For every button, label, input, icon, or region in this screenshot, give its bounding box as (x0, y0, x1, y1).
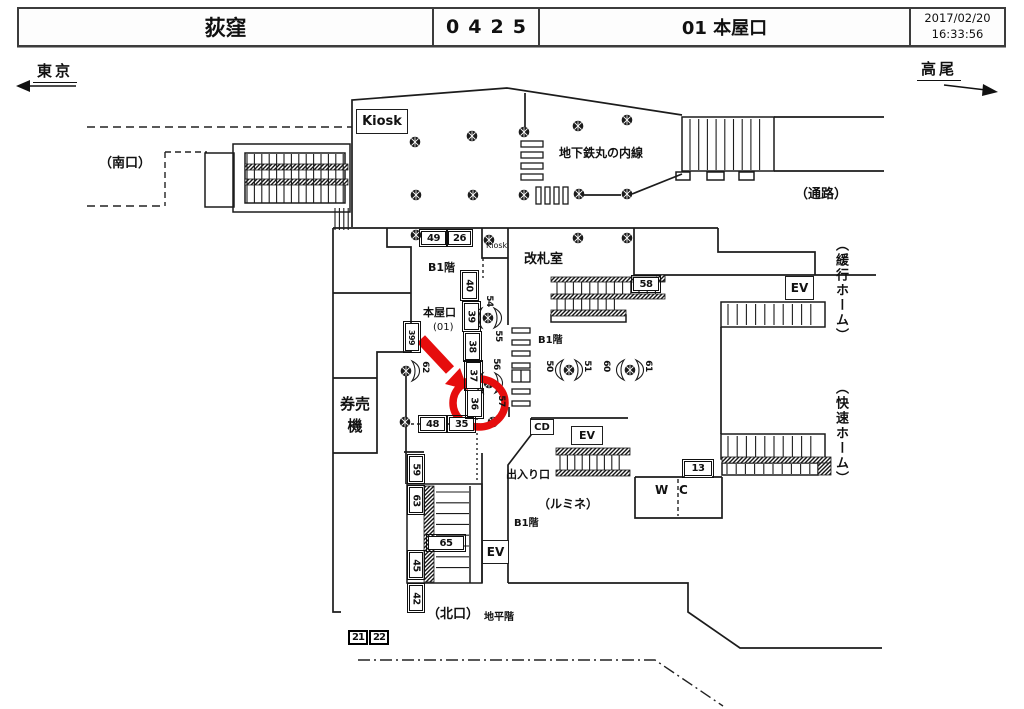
camera-number-55: 55 (493, 327, 503, 345)
ev-upper-right: EV (785, 276, 814, 300)
position-box-42[interactable]: 42 (409, 585, 423, 611)
label-b1-south: B1階 (514, 518, 539, 530)
position-box-36[interactable]: 36 (467, 390, 482, 417)
camera-number-62: 62 (420, 358, 430, 376)
position-box-37[interactable]: 37 (466, 362, 481, 389)
camera-number-56: 56 (491, 355, 501, 373)
label-local-platform: （緩行ホーム） (832, 238, 847, 343)
ev-center: EV (571, 426, 603, 445)
label-wc-w: W (655, 484, 668, 498)
position-box-39[interactable]: 39 (464, 303, 479, 330)
label-passage: （通路） (795, 188, 847, 203)
label-exit-entrance: 出入り口 (506, 469, 550, 482)
label-marunouchi-line: 地下鉄丸の内線 (559, 147, 643, 161)
station-map-viewer: { "header": { "station": "荻窪", "code": "… (0, 0, 1024, 709)
position-box-38[interactable]: 38 (465, 333, 480, 360)
position-box-40[interactable]: 40 (462, 272, 477, 299)
label-rapid-platform: （快速ホーム） (832, 381, 847, 486)
label-ground-level: 地平階 (484, 612, 514, 624)
label-honyaguchi-no: (01) (433, 322, 454, 334)
label-b1-center: B1階 (538, 335, 563, 347)
position-box-26[interactable]: 26 (448, 231, 471, 245)
label-gate-office: 改札室 (524, 253, 563, 268)
label-honyaguchi: 本屋口 (423, 307, 456, 320)
ev-lower-left: EV (482, 540, 509, 564)
camera-number-54: 54 (484, 292, 494, 310)
label-lumine: （ルミネ） (538, 498, 598, 512)
label-south-exit: （南口） (99, 157, 151, 172)
position-box-13[interactable]: 13 (684, 461, 712, 476)
camera-number-50: 50 (544, 357, 554, 375)
position-box-45[interactable]: 45 (409, 552, 423, 578)
position-box-21[interactable]: 21 (348, 630, 368, 645)
position-box-48[interactable]: 48 (420, 417, 445, 431)
position-box-59[interactable]: 59 (409, 456, 423, 482)
position-box-58[interactable]: 58 (633, 277, 659, 291)
camera-number-61: 61 (643, 357, 653, 375)
label-ticket-machines: 券売機 (337, 394, 373, 438)
kiosk-box: Kiosk (356, 109, 408, 134)
label-layer: （南口）地下鉄丸の内線（通路）Kiosk改札室B1階B1階B1階本屋口(01)券… (0, 0, 1024, 709)
position-box-35[interactable]: 35 (449, 417, 474, 431)
label-north-exit: （北口） (427, 608, 479, 623)
camera-number-51: 51 (582, 357, 592, 375)
label-b1-west: B1階 (428, 262, 455, 275)
position-box-49[interactable]: 49 (421, 231, 446, 245)
camera-number-60: 60 (601, 357, 611, 375)
position-box-22[interactable]: 22 (369, 630, 389, 645)
cd-box: CD (530, 419, 554, 435)
label-wc-c: C (679, 484, 688, 498)
position-box-65[interactable]: 65 (428, 536, 464, 550)
camera-number-57: 57 (496, 392, 506, 410)
label-kiosk-small: Kiosk (486, 241, 507, 250)
position-box-399[interactable]: 399 (405, 323, 419, 351)
position-box-63[interactable]: 63 (409, 487, 423, 513)
